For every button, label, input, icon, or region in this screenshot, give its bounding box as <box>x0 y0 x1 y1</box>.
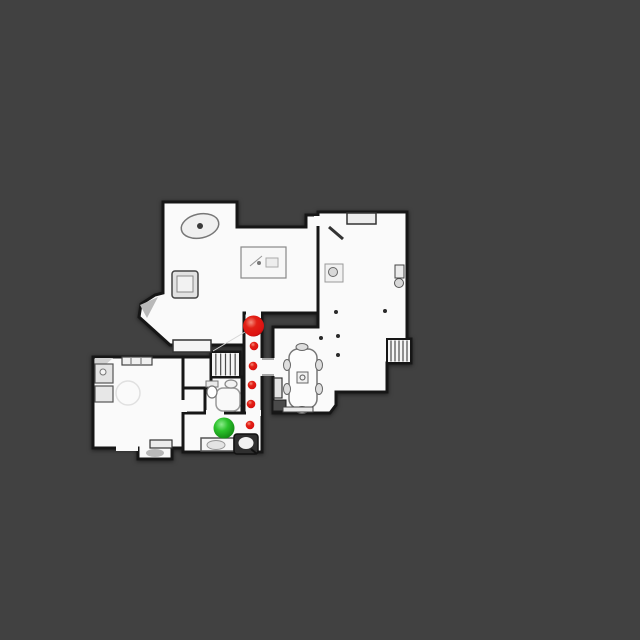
kitchen-counter-2 <box>95 386 113 402</box>
dining-bench <box>283 407 313 412</box>
red-waypoint-dot-5 <box>246 421 255 430</box>
floor-dot-5 <box>336 353 340 357</box>
floor-dot-4 <box>336 334 340 338</box>
dining-chair-west2 <box>284 384 291 395</box>
stairs-east <box>387 339 411 363</box>
red-path-marker-large <box>243 316 264 337</box>
window-bench <box>173 340 211 352</box>
door-bedroom-closet <box>180 400 187 412</box>
dining-chair-north <box>296 344 308 351</box>
dining-chair-west1 <box>284 360 291 371</box>
window-shelf <box>122 357 152 365</box>
door-corridor-entry <box>246 410 261 416</box>
kitchen-sink <box>100 369 106 375</box>
dining-chair-east2 <box>316 384 323 395</box>
desk-stool <box>395 279 404 288</box>
rug-sketch-dot <box>257 261 261 265</box>
door-corridor-dining <box>260 358 276 376</box>
red-waypoint-dot-2 <box>249 362 258 371</box>
toilet-bowl <box>207 386 217 398</box>
bathtub <box>216 388 240 411</box>
bathroom-sink <box>225 380 237 388</box>
map-viewport <box>0 0 640 640</box>
floor-dot-2 <box>383 309 387 313</box>
red-waypoint-dot-4 <box>247 400 256 409</box>
rug-sketch-box <box>266 258 278 267</box>
red-waypoint-dot-1 <box>250 342 259 351</box>
entry-bench-cushion <box>207 441 225 450</box>
area-rug <box>241 247 286 278</box>
centerpiece-tray <box>297 372 308 383</box>
floorplan-map[interactable] <box>0 0 640 640</box>
door-step <box>150 440 172 448</box>
dining-chair-east1 <box>316 360 323 371</box>
armchair-cushion <box>177 276 193 292</box>
sideboard <box>274 378 282 398</box>
alcove-mat <box>146 449 164 457</box>
floor-dot-1 <box>334 310 338 314</box>
radiator <box>395 265 404 278</box>
round-table-pedestal <box>197 223 203 229</box>
door-living-greatroom <box>314 216 323 226</box>
alcove-shelf <box>347 213 376 224</box>
side-table-vase <box>329 268 338 277</box>
red-waypoint-dot-3 <box>248 381 257 390</box>
entry-armchair-seat <box>239 437 254 449</box>
stairs-middle <box>211 352 240 377</box>
door-bedroom-south <box>116 444 138 451</box>
green-position-marker <box>214 418 235 439</box>
floor-dot-3 <box>319 336 323 340</box>
